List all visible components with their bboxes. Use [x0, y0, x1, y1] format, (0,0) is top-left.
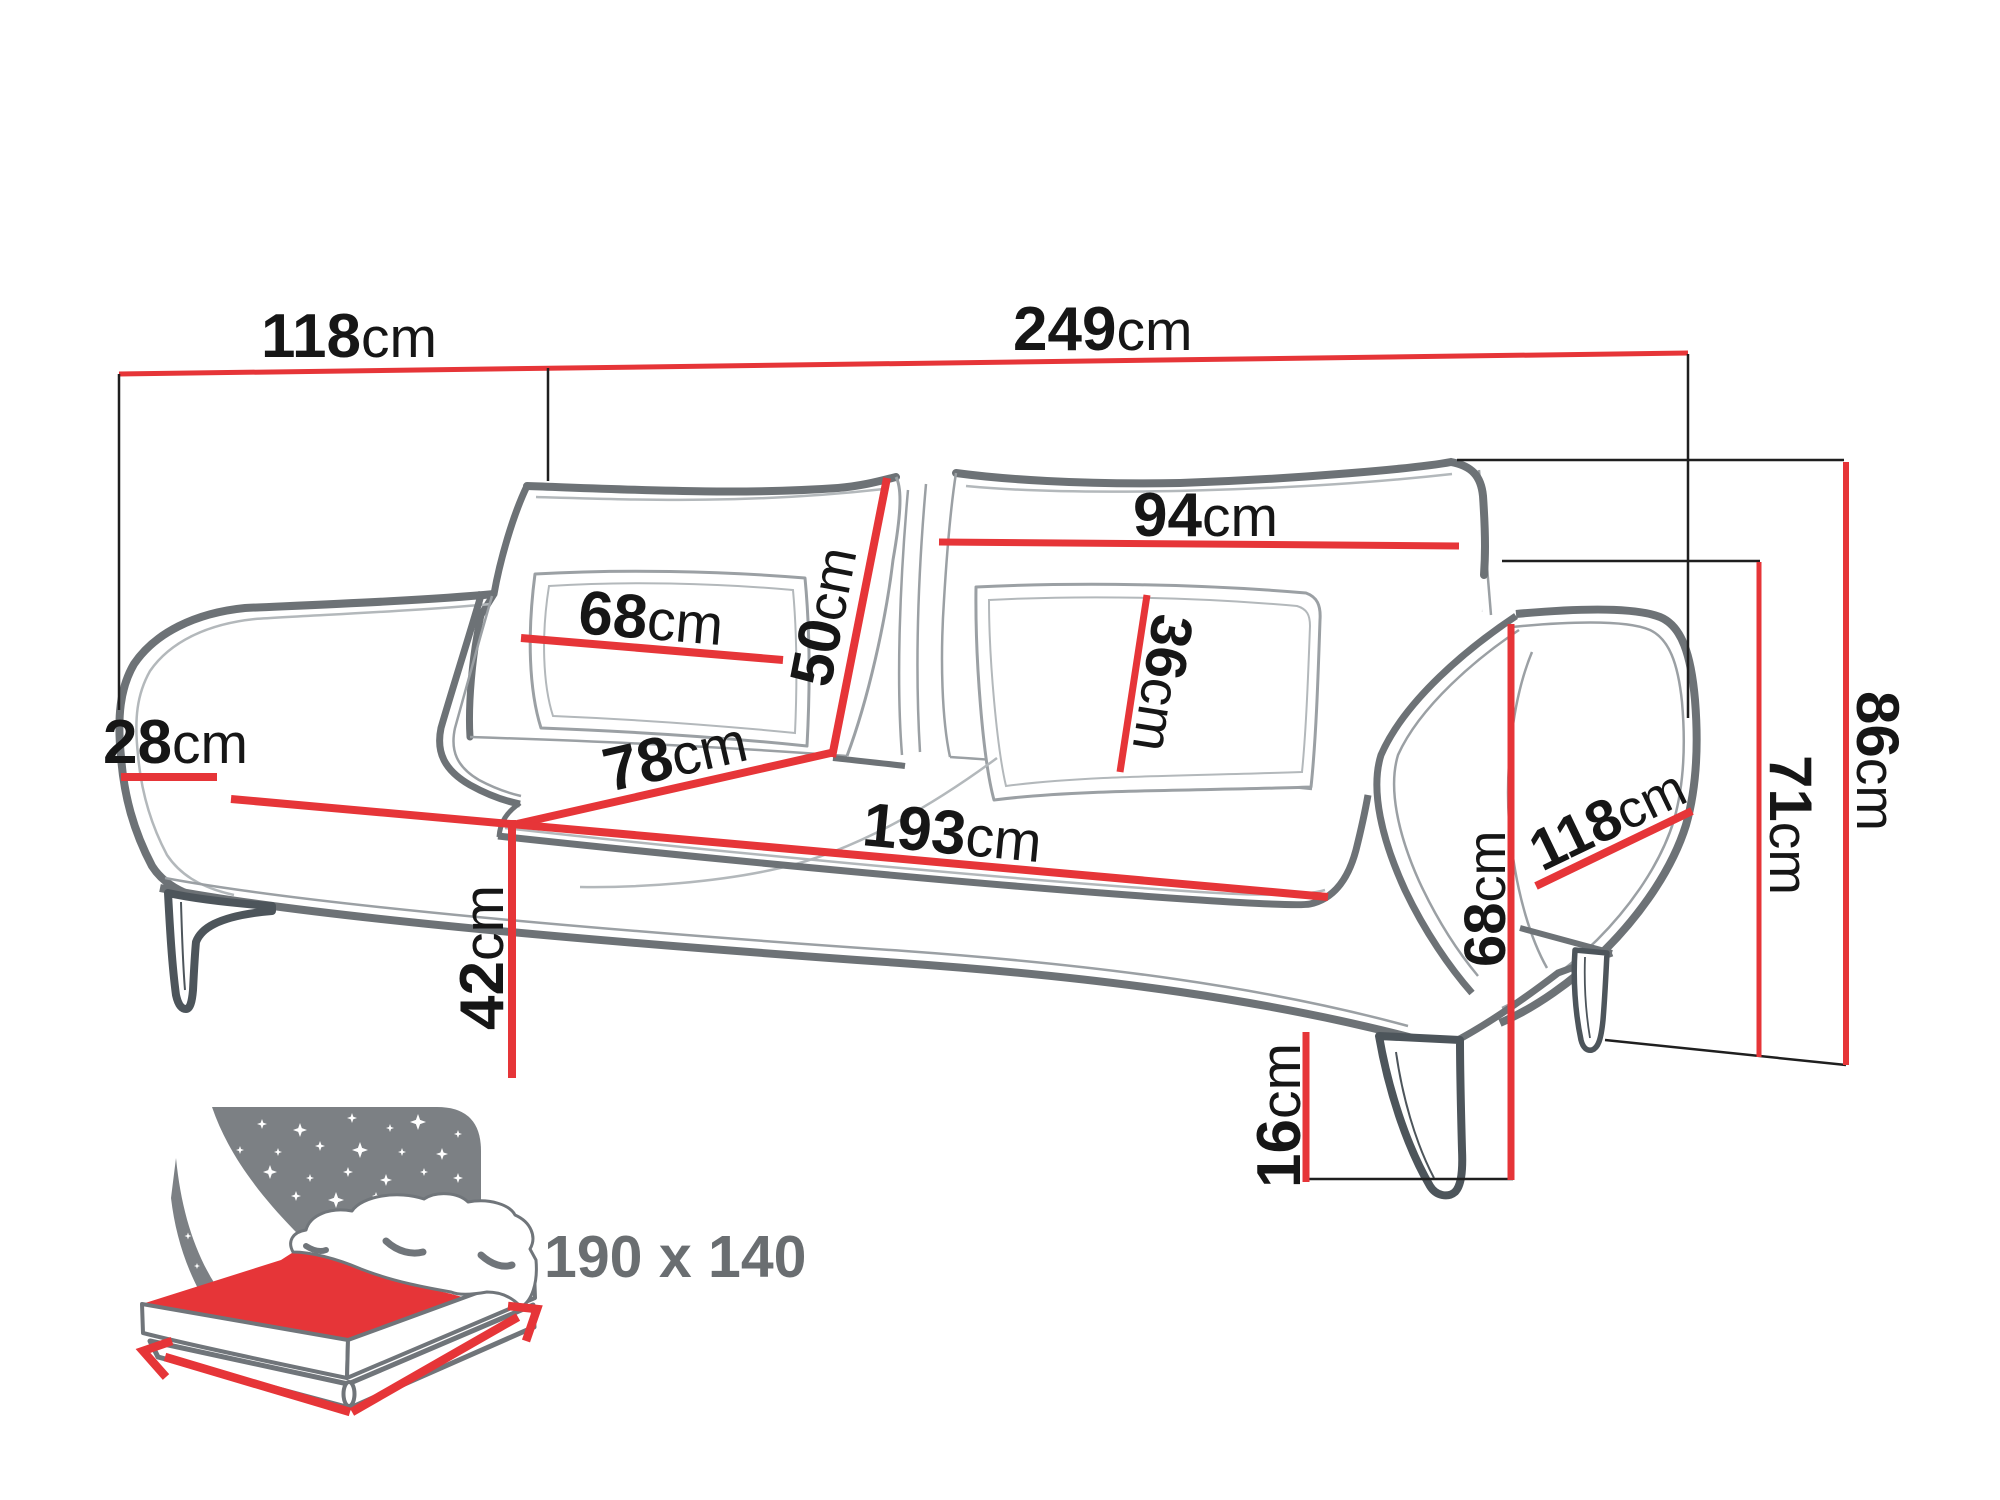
- svg-text:71cm: 71cm: [1757, 755, 1824, 895]
- svg-text:42cm: 42cm: [448, 885, 517, 1030]
- svg-text:16cm: 16cm: [1245, 1043, 1314, 1188]
- svg-text:86cm: 86cm: [1844, 691, 1911, 831]
- svg-text:118cm: 118cm: [261, 302, 437, 371]
- svg-text:68cm: 68cm: [1453, 831, 1518, 968]
- svg-text:249cm: 249cm: [1013, 295, 1192, 364]
- svg-text:94cm: 94cm: [1133, 481, 1278, 550]
- svg-text:28cm: 28cm: [103, 708, 248, 777]
- svg-text:190 x 140: 190 x 140: [544, 1224, 806, 1290]
